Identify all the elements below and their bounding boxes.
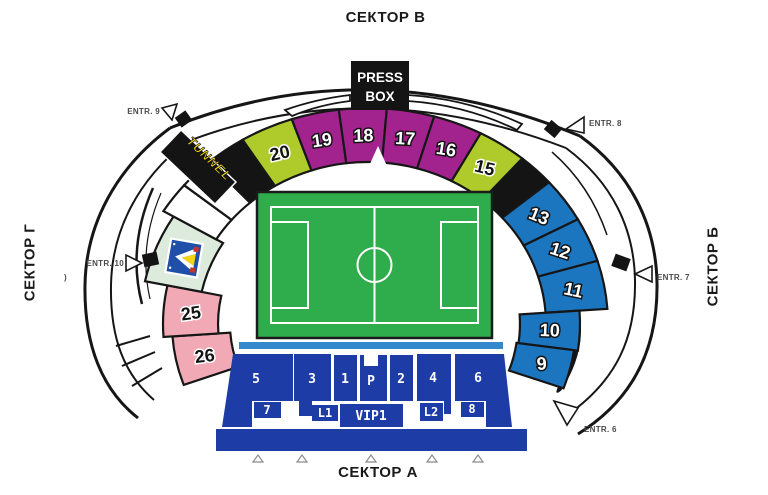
entrance-4: ENTR. 7 <box>611 254 690 282</box>
section-number-10: 10 <box>540 320 561 341</box>
stand-label-L1: L1 <box>318 406 332 420</box>
section-number-26: 26 <box>194 345 216 367</box>
stand-label-2: 2 <box>397 372 405 387</box>
entrance-gate-icon <box>611 254 630 272</box>
stand-label-VIP1: VIP1 <box>355 409 386 424</box>
gate-marker-icon <box>366 455 376 462</box>
press-box-label-line2: BOX <box>365 89 394 104</box>
stand-label-P: P <box>367 374 375 389</box>
sector-a-stand: 531P2467L1VIP1L28 <box>216 342 527 462</box>
press-box-label-line1: PRESS <box>357 70 403 85</box>
section-number-25: 25 <box>180 302 203 325</box>
section-number-17: 17 <box>395 128 416 149</box>
entrance-label: ENTR. 8 <box>589 119 622 128</box>
entrance-arrow-icon <box>554 401 578 425</box>
gate-marker-icon <box>297 455 307 462</box>
stand-label-6: 6 <box>474 371 482 386</box>
gate-marker-icon <box>473 455 483 462</box>
gate-marker-icon <box>253 455 263 462</box>
section-number-11: 11 <box>562 278 585 302</box>
entrance-5: ENTR. 6 <box>554 401 617 434</box>
section-number-19: 19 <box>311 129 334 152</box>
stand-label-1: 1 <box>341 372 349 387</box>
section-number-16: 16 <box>435 138 458 161</box>
entrance-label-suffix: ) <box>64 273 67 282</box>
entrance-arrow-icon <box>126 255 142 271</box>
stand-label-3: 3 <box>308 372 316 387</box>
section-number-18: 18 <box>353 125 374 146</box>
entrance-label: ENTR. 10 <box>86 259 124 268</box>
section-number-9: 9 <box>536 353 547 374</box>
club-crest <box>165 238 202 277</box>
stand-label-7: 7 <box>263 403 270 417</box>
trackside-strip <box>239 342 503 349</box>
stand-lower-bar <box>216 429 527 451</box>
stand-label-L2: L2 <box>424 405 438 419</box>
stand-label-5: 5 <box>252 372 260 387</box>
entrance-label: ENTR. 7 <box>657 273 690 282</box>
entrance-label: ENTR. 6 <box>584 425 617 434</box>
stadium-map: 2625201918171615131211109TUNNELPRESSBOX5… <box>0 0 768 495</box>
entrance-label: ENTR. 9 <box>127 107 160 116</box>
entrance-arrow-icon <box>635 266 652 282</box>
stand-label-8: 8 <box>468 402 475 416</box>
entrance-2: ENTR. 8 <box>544 117 622 138</box>
football-pitch <box>257 192 492 338</box>
gate-marker-icon <box>427 455 437 462</box>
entrance-1: ENTR. 9 <box>127 104 192 128</box>
entrance-arrow-icon <box>162 104 177 120</box>
stand-label-4: 4 <box>429 371 437 386</box>
